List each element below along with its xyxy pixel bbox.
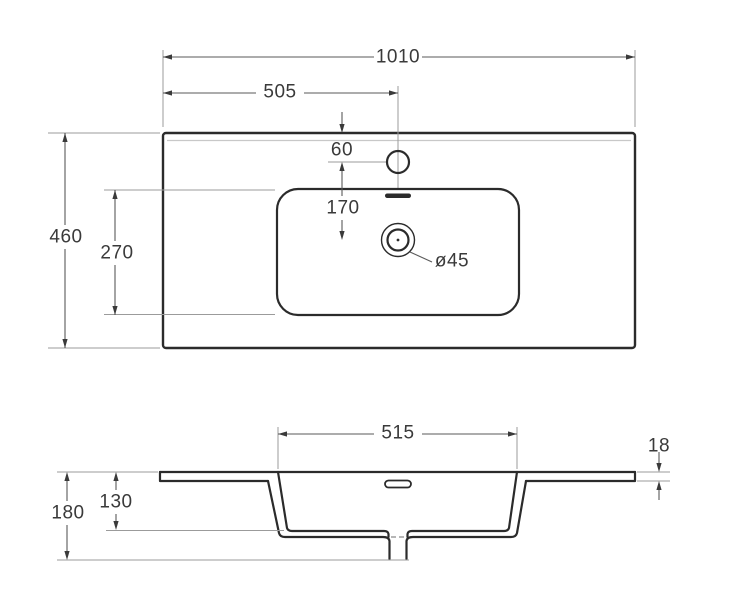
dim-arrow: [626, 54, 635, 59]
counter-slab-right: [526, 472, 635, 481]
dim-arrow: [163, 54, 172, 59]
dim-arrow: [656, 463, 661, 472]
section-view: [160, 472, 635, 559]
basin-outer-right-wall: [407, 481, 527, 559]
dim-label-faucet-drain: 170: [326, 198, 359, 219]
dim-arrow: [64, 472, 69, 481]
dim-arrow: [278, 431, 287, 436]
dim-arrow: [656, 481, 661, 490]
dim-arrow: [64, 551, 69, 560]
overflow-slot-top: [385, 194, 411, 199]
dim-label-basin-width: 515: [381, 423, 414, 444]
dim-arrow: [113, 472, 118, 481]
counter-slab-left: [160, 472, 268, 481]
dim-arrow: [112, 190, 117, 199]
dim-label-bowl-depth: 130: [99, 492, 132, 513]
dim-arrow: [163, 90, 172, 95]
dim-label-overall-depth: 460: [49, 227, 82, 248]
dim-label-counter-thickness: 18: [648, 436, 670, 457]
dim-label-overall-height: 180: [51, 503, 84, 524]
dim-arrow: [339, 124, 344, 133]
dim-arrow: [389, 90, 398, 95]
dim-arrow: [112, 306, 117, 315]
top-view: [163, 86, 635, 348]
dim-arrow: [62, 339, 67, 348]
basin-opening-outline: [277, 189, 519, 315]
overflow-slot-section: [385, 481, 411, 488]
basin-inner-left-wall: [278, 472, 389, 537]
basin-inner-right-wall: [408, 472, 518, 537]
dim-label-faucet-edge: 60: [331, 140, 353, 161]
dim-arrow: [113, 521, 118, 530]
washbasin-drawing: 1010 505 60 170 460 270 ø: [0, 0, 750, 609]
dim-label-faucet-offset: 505: [263, 82, 296, 103]
dim-arrow: [62, 133, 67, 142]
dim-label-drain-diameter: ø45: [435, 251, 469, 272]
dim-label-basin-depth: 270: [100, 243, 133, 264]
dim-arrow: [508, 431, 517, 436]
technical-drawing-canvas: 1010 505 60 170 460 270 ø: [0, 0, 750, 609]
dimensions-section-view: 515 18 180 130: [51, 423, 670, 561]
drain-center-dot: [397, 239, 400, 242]
dim-label-overall-width: 1010: [376, 47, 420, 68]
